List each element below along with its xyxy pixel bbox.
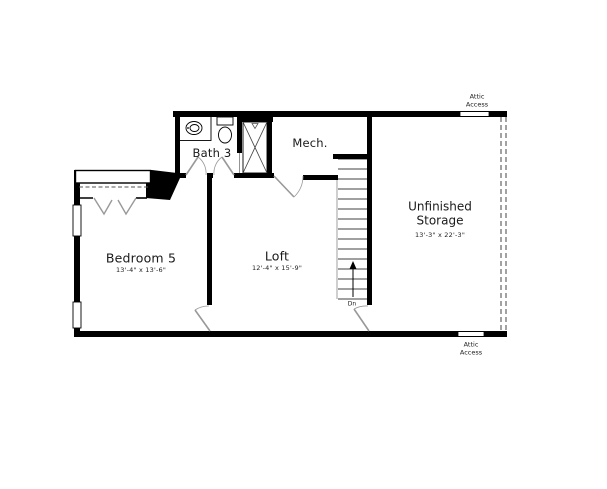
room-label-mech: Mech. xyxy=(292,136,327,150)
closet-doors xyxy=(94,198,136,214)
attic-access-panel-top xyxy=(460,112,489,117)
room-label-bedroom5: Bedroom 5 xyxy=(106,251,176,266)
stairs xyxy=(337,159,367,299)
attic-access-panel-bottom xyxy=(458,332,484,337)
room-dims-bedroom5: 13'-4" x 13'-6" xyxy=(116,266,166,274)
room-dims-loft: 12'-4" x 15'-9" xyxy=(252,264,302,272)
toilet-icon xyxy=(217,117,233,143)
stairs-down-label: Dn xyxy=(348,301,356,308)
room-label-loft: Loft xyxy=(265,249,289,264)
floor-plan-drawing xyxy=(0,0,607,489)
room-label-bath3: Bath 3 xyxy=(193,146,232,160)
mech-door xyxy=(274,176,303,197)
room-dims-storage: 13'-3" x 22'-3" xyxy=(415,231,465,239)
storage-door xyxy=(354,306,369,331)
room-label-storage: Unfinished Storage xyxy=(397,201,483,228)
floor-plan: Bath 3 Mech. Bedroom 5 13'-4" x 13'-6" L… xyxy=(0,0,607,489)
attic-access-label-bottom: Attic Access xyxy=(453,342,489,357)
dashed-knee-wall xyxy=(501,117,506,331)
shower-icon xyxy=(240,122,268,173)
attic-access-label-top: Attic Access xyxy=(459,94,495,109)
closet xyxy=(75,171,151,199)
bedroom-door xyxy=(195,306,210,331)
sink-icon xyxy=(179,117,211,141)
